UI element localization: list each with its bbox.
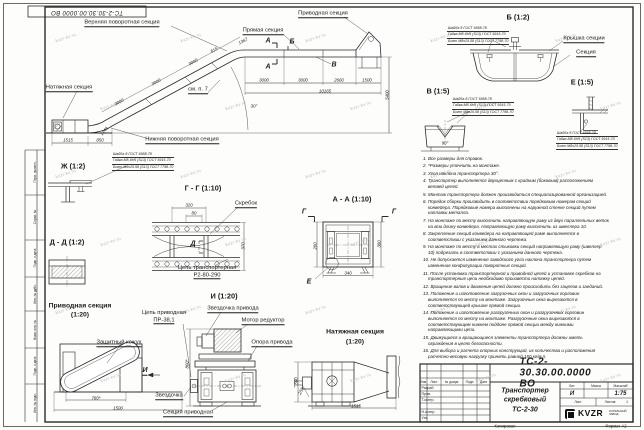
kvzr-logo-text: KVZR: [578, 408, 603, 418]
tb-scale-label: Масштаб: [613, 384, 627, 388]
title-detail-b: Б (1:2): [507, 13, 530, 22]
label-conveyor-chain-1: Цепь транспортерная: [178, 265, 237, 271]
title-detail-v: В (1:5): [427, 87, 450, 96]
marker-g-left: Г: [302, 209, 306, 216]
margin-label-4: Взам. инв. №: [33, 320, 37, 340]
detail-e-geometry: [572, 97, 608, 134]
top-stamp-number: ТС-2-30.30.00.0000 ВО: [51, 9, 123, 15]
title-section-aa: А - А (1:10): [332, 195, 371, 204]
note-3: 3. Угол наклона транспортера 30°.: [423, 171, 609, 177]
label-drive-chain-1: Цепь приводная: [142, 310, 186, 316]
dim-1515-main: 1515: [63, 138, 73, 143]
dim-5400: 5400: [385, 90, 390, 100]
label-section: Секция: [576, 49, 596, 57]
title-drive-view-1: Приводная секция: [49, 303, 112, 310]
dim-800: 800*: [185, 359, 190, 368]
label-drive-section-main: Приводная секция: [298, 10, 348, 18]
drawing-sheet: kvzr-kv.rukvzr-kv.rukvzr-kv.rukvzr-kv.ru…: [0, 0, 644, 430]
label-conveyor-chain-2: Р2-80-290: [193, 272, 220, 280]
dim-straight-3000-1: 3000: [259, 78, 269, 83]
title-section-gg: Г - Г (1:10): [185, 184, 222, 193]
doc-title-line-2: скребковый: [504, 397, 546, 404]
note-10: 10. Не допускается изменение заводского …: [423, 257, 609, 269]
title-drive-view-2: (1:20): [71, 312, 89, 319]
label-upper-turn-section: Верхняя поворотная секция: [84, 19, 159, 27]
marker-b: Б: [290, 39, 295, 46]
label-sprocket: Звездочка: [155, 392, 183, 400]
doc-title-line-1: Транспортер: [501, 388, 549, 395]
doc-number: ТС-2-30.30.00.0000 ВО: [520, 357, 603, 390]
note-2: 2. *Размеры уточнить на монтаже.: [423, 163, 609, 169]
marker-e-detail: Е: [307, 279, 312, 286]
label-drive-chain-2: ПР-38,1: [153, 317, 174, 325]
note-14: 14. Положение и изготовление разгрузочны…: [423, 310, 609, 333]
marker-a-bottom: А: [265, 64, 270, 71]
tb-row-tkontr: Т.контр.: [422, 398, 435, 402]
tb-row-razrab: Разраб.: [422, 386, 435, 390]
tb-mass-label: Масса: [591, 384, 601, 388]
copied-label: Копировал: [495, 424, 516, 429]
tb-sheets-value: 1: [626, 400, 628, 404]
note-9: 9. На монтаже по месту в местах стыковки…: [423, 244, 609, 256]
label-drive-sprocket: Звездочка привода: [207, 305, 258, 313]
label-section-cover: Крышка секции: [563, 35, 604, 43]
title-view-i: И (1:20): [210, 292, 237, 301]
title-tension-view-2: (1:20): [346, 339, 364, 346]
kvzr-logo-subtext: КОТЕЛЬНЫЙ ЗАВОД: [609, 410, 627, 417]
format-label: Формат А2: [605, 424, 626, 429]
tb-row-utv: Утв.: [422, 416, 429, 420]
title-section-dd: Д - Д (1:2): [50, 238, 85, 247]
tension-section-view-geometry: [294, 356, 400, 410]
callout-detail-zh: Шайба 8 ГОСТ 6958-78Гайка М8-6Н5 (S13) Г…: [112, 152, 174, 171]
doc-title-line-3: ТС-2-30: [512, 407, 538, 414]
title-detail-zh: Ж (1:2): [61, 162, 85, 171]
callout-detail-v: Шайба 8 ГОСТ 6958-78Гайка М8-6Н5 (S13) Г…: [452, 97, 514, 116]
margin-label-2: Подп. и дата: [33, 249, 37, 268]
note-5: 5. Монтаж транспортера должен производит…: [423, 192, 609, 198]
label-straight-section: Прямая секция: [243, 27, 284, 35]
dim-340: 340: [344, 271, 351, 276]
kvzr-logo-icon: [565, 409, 575, 419]
label-drive-section-view: Секция приводная: [163, 409, 213, 417]
label-motor-reducer: Мотор редуктор: [242, 317, 285, 325]
title-detail-e: Е (1:5): [571, 78, 594, 87]
section-gg-geometry: [152, 207, 246, 271]
note-13: 13. Положение и изготовление загрузочных…: [423, 291, 609, 308]
dim-1515-tension: 1515: [351, 403, 361, 408]
dim-200: 200: [312, 242, 317, 249]
tb-header-podp: Подп.: [466, 380, 475, 384]
dim-angle-30: 30°: [251, 104, 258, 109]
kvzr-logo: KVZR КОТЕЛЬНЫЙ ЗАВОД: [562, 407, 632, 421]
ref-see-note-7: см. п. 7: [188, 86, 208, 94]
tb-header-list: Лист: [430, 380, 437, 384]
tb-sheet-label: Лист: [574, 400, 581, 404]
dim-560-tension: 560: [294, 377, 299, 384]
dim-780: 780*: [91, 395, 100, 400]
dim-angle-90: 90°: [442, 141, 449, 146]
note-6: 6. Порядок сборки производить в соответс…: [423, 199, 609, 216]
note-4: 4. Транспортер выполняется двухцепным с …: [423, 178, 609, 190]
note-15: 15. Движущиеся и вращающиеся элементы тр…: [423, 335, 609, 347]
dim-2660: 2660: [334, 78, 344, 83]
view-i-geometry: [183, 312, 261, 411]
note-8: 8. Закрепление секций конвейера на напра…: [423, 231, 609, 243]
dim-850: 850: [96, 138, 103, 143]
label-lower-turn-section: Нижняя поворотная секция: [145, 136, 219, 144]
margin-label-6: Инв. № подл.: [33, 393, 37, 413]
label-scraper: Скребок: [235, 200, 257, 208]
marker-i-arrow: И: [142, 367, 147, 376]
tb-row-nkontr: Н.контр.: [422, 410, 436, 414]
label-drive-support: Опора привода: [251, 339, 292, 347]
tb-header-docnum: № докум.: [445, 380, 459, 384]
tb-header-data: Дата: [480, 380, 487, 384]
dim-370: 370: [240, 242, 245, 249]
section-dd-geometry: [49, 256, 85, 288]
note-11: 11. После установки транспортерной и при…: [423, 271, 609, 283]
callout-detail-e: Шайба 8 ГОСТ 6958-78Гайка М8-6Н5 (S13) Г…: [556, 131, 618, 150]
marker-v: В: [331, 62, 336, 69]
marker-a-top: А: [265, 38, 270, 45]
dim-320: 320: [185, 203, 192, 208]
marker-g-right: Г: [392, 209, 396, 216]
callout-detail-b: Шайба 8 ГОСТ 6958-78Гайка М8-6Н5 (S13) Г…: [447, 26, 509, 45]
dim-360: 360: [376, 240, 381, 247]
marker-d: Д: [190, 241, 195, 248]
tb-header-izm: Изм.: [420, 380, 427, 384]
tb-row-prov: Пров.: [422, 392, 432, 396]
tb-lit-value: И: [570, 391, 574, 397]
label-protective-casing: Защитный кожух: [96, 339, 141, 347]
detail-zh-geometry: [48, 166, 126, 202]
tb-scale-value: 1:75: [614, 391, 626, 397]
dim-10165: 10165: [319, 88, 331, 93]
margin-label-5: Подп. и дата: [33, 357, 37, 376]
technical-notes: 1. Все размеры для справок.2. *Размеры у…: [423, 156, 609, 361]
note-12: 12. Вращение валов и движение цепей долж…: [423, 284, 609, 290]
dim-80: 80: [192, 211, 197, 216]
dim-1500-main: 1500: [362, 78, 372, 83]
tb-sheets-label: Листов: [605, 400, 616, 404]
margin-label-3: Инв. № дубл.: [33, 284, 37, 304]
dim-straight-3000-2: 3000: [298, 78, 308, 83]
title-tension-view-1: Натяжная секция: [326, 329, 384, 336]
margin-label-0: Перв. примен.: [33, 161, 37, 182]
note-7: 7. На монтаже по месту выполнить направл…: [423, 218, 609, 230]
dim-1500-drive: 1500: [113, 405, 123, 410]
note-1: 1. Все размеры для справок.: [423, 156, 609, 162]
label-tension-section-main: Натяжная секция: [46, 84, 93, 92]
tb-lit-label: Лит.: [569, 384, 575, 388]
margin-label-1: Справ. №: [33, 210, 37, 224]
